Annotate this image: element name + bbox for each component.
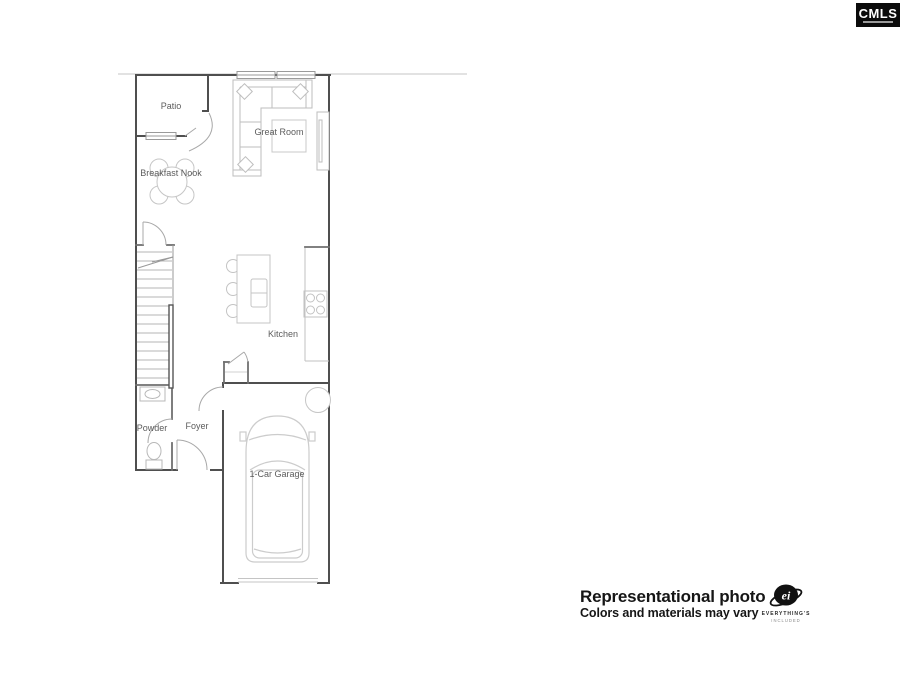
- front-door-arc: [177, 440, 207, 470]
- everythings-included-logo: ei EVERYTHING'S INCLUDED: [756, 582, 816, 628]
- room-label-patio: Patio: [161, 101, 182, 111]
- toilet-tank: [146, 460, 162, 469]
- disclaimer-line1: Representational photo: [580, 587, 765, 606]
- nook-dining-set: [150, 159, 194, 204]
- room-label-foyer: Foyer: [185, 421, 208, 431]
- floor-plan: Patio Great Room Breakfast Nook Kitchen …: [0, 0, 900, 675]
- tv: [319, 120, 322, 162]
- room-label-kitchen: Kitchen: [268, 329, 298, 339]
- sink: [145, 390, 160, 399]
- cmls-logo-text: CMLS: [859, 7, 898, 20]
- side-mirror: [309, 432, 315, 441]
- disclaimer: Representational photo Colors and materi…: [580, 587, 765, 621]
- patio-door-leaf: [185, 128, 196, 136]
- room-label-garage: 1-Car Garage: [249, 469, 304, 479]
- cmls-logo-subtext-bar: [863, 21, 893, 23]
- room-label-breakfast-nook: Breakfast Nook: [140, 168, 202, 178]
- ei-line1: EVERYTHING'S: [762, 611, 811, 617]
- room-label-powder: Powder: [137, 423, 168, 433]
- media-console: [317, 112, 329, 170]
- ei-line2: INCLUDED: [771, 618, 800, 623]
- disclaimer-line2: Colors and materials may vary: [580, 606, 765, 621]
- patio-door-arc: [189, 113, 212, 151]
- listing-photo: Patio Great Room Breakfast Nook Kitchen …: [0, 0, 900, 675]
- garage-door-arc: [199, 387, 223, 411]
- kitchen-counter: [304, 248, 329, 361]
- room-labels: Patio Great Room Breakfast Nook Kitchen …: [137, 101, 305, 479]
- closet-door-leaf: [228, 352, 244, 364]
- kitchen-island: [227, 255, 271, 323]
- water-heater: [306, 388, 331, 413]
- car: [240, 416, 315, 562]
- staircase: [137, 245, 173, 378]
- closet-door-arc: [244, 352, 248, 362]
- side-mirror: [240, 432, 246, 441]
- garage-door: [238, 579, 318, 583]
- cmls-logo: CMLS: [856, 3, 900, 27]
- room-label-great-room: Great Room: [254, 127, 303, 137]
- stair-handrail: [169, 305, 173, 388]
- ei-monogram: ei: [782, 589, 791, 603]
- stair-door-arc: [143, 222, 166, 245]
- toilet-bowl: [147, 443, 161, 460]
